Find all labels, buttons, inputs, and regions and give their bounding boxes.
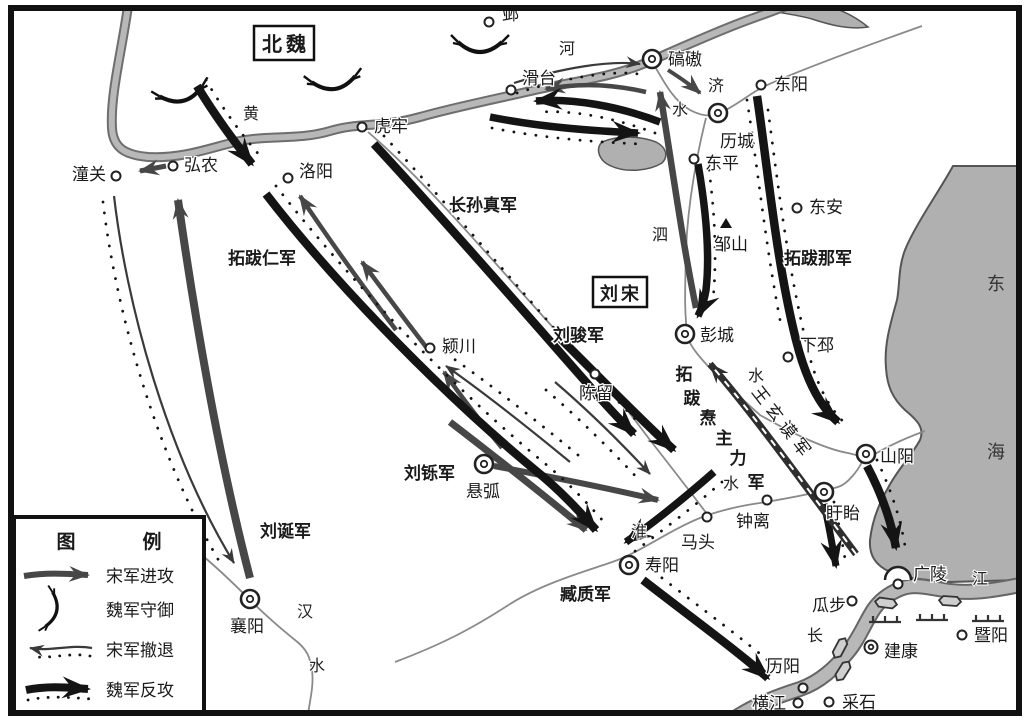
riverbank-fort-icon: [972, 615, 1004, 621]
yellow-river: [112, 3, 795, 157]
city-label-dongping: 东平: [705, 154, 739, 173]
city-label-xiapi: 下邳: [800, 336, 834, 355]
city-marker-shouyang: [620, 556, 638, 574]
city-label-licheng: 历城: [720, 132, 754, 151]
svg-text:跋: 跋: [684, 388, 701, 408]
river-label-huai: 淮: [631, 523, 647, 541]
battle-map: 北魏 刘宋 东 海 黄 河 济 水 泗 水 淮 水 汉 水 长 江 潼关 弘农 …: [0, 0, 1030, 720]
city-marker-qiaoao: [643, 50, 661, 68]
army-label-tuoba-na: 拓跋那军: [784, 248, 852, 268]
city-marker-dongyang: [757, 81, 766, 90]
city-label-shanyang: 山阳: [880, 447, 914, 466]
city-marker-hengjiang: [794, 699, 803, 708]
city-label-guangling: 广陵: [913, 565, 947, 584]
sea-label-hai: 海: [987, 442, 1005, 462]
svg-text:主: 主: [716, 428, 733, 448]
region-north-wei: 北魏: [254, 26, 314, 60]
city-marker-guabu: [848, 597, 857, 606]
city-marker-shanyang: [857, 445, 875, 463]
city-label-yingchuan: 颍川: [442, 337, 476, 356]
wei-defense-arc-icon: [304, 68, 364, 93]
legend-label-wei-counter: 魏军反攻: [106, 681, 174, 700]
city-label-pengcheng: 彭城: [700, 326, 734, 345]
city-marker-hulao: [358, 123, 367, 132]
city-marker-dongping: [690, 155, 699, 164]
region-label-north-wei: 北魏: [262, 32, 310, 56]
legend: 图 例 宋军进攻 魏军守御 宋军撤退 魏军反攻: [14, 517, 204, 713]
river-label-he: 河: [559, 40, 575, 58]
river-label-si: 泗: [652, 226, 668, 244]
legend-title-tu: 图: [56, 531, 75, 553]
city-label-liyang: 历阳: [766, 657, 800, 676]
city-marker-licheng: [709, 104, 727, 122]
city-marker-matou: [703, 513, 712, 522]
ship-icon: [939, 596, 962, 607]
map-canvas: 北魏 刘宋 东 海 黄 河 济 水 泗 水 淮 水 汉 水 长 江 潼关 弘农 …: [0, 0, 1030, 720]
city-marker-xiapi: [784, 353, 793, 362]
svg-text:力: 力: [730, 448, 747, 468]
city-label-zoushan: 邹山: [714, 235, 748, 254]
army-label-liu-shuo: 刘铄军: [404, 463, 455, 483]
city-label-xuyi: 盱眙: [826, 504, 860, 523]
city-marker-yingchuan: [426, 344, 435, 353]
city-marker-luoyang: [284, 174, 293, 183]
city-marker-jiankang: [865, 641, 878, 654]
svg-text:拓: 拓: [676, 365, 693, 384]
city-label-hulao: 虎牢: [374, 117, 408, 136]
mountain-icon-zoushan: [720, 218, 732, 228]
army-label-changsun-zhen: 长孙真军: [449, 195, 517, 215]
city-label-chenliu: 陈留: [579, 384, 613, 403]
river-label-ji: 济: [708, 77, 724, 95]
city-marker-caishi: [825, 698, 834, 707]
river-label-chang: 长: [807, 627, 823, 645]
city-marker-xuyi: [815, 483, 833, 501]
city-label-dongyang: 东阳: [774, 75, 808, 94]
city-label-zhongli: 钟离: [736, 512, 770, 531]
city-marker-dongan: [793, 204, 802, 213]
city-label-luoyang: 洛阳: [299, 162, 333, 181]
city-marker-huatai: [507, 86, 516, 95]
city-label-qiaoao: 碻磝: [668, 50, 702, 69]
river-label-jiang: 江: [972, 570, 988, 588]
city-marker-tongguan: [112, 172, 121, 181]
legend-title-li: 例: [142, 530, 161, 553]
svg-text:军: 军: [748, 473, 765, 492]
city-marker-ye: [485, 18, 494, 27]
region-label-liu-song: 刘宋: [600, 283, 642, 304]
city-label-guabu: 瓜步: [812, 596, 846, 615]
wei-defense-arc-icon: [451, 35, 509, 52]
city-label-xuanhu: 悬弧: [466, 482, 500, 501]
city-marker-xiangyang: [241, 590, 259, 608]
city-marker-xuanhu: [475, 455, 493, 473]
city-marker-liyang: [799, 684, 808, 693]
river-label-han-shui: 水: [309, 657, 325, 675]
city-label-dongan: 东安: [809, 198, 843, 217]
sea-label-dong: 东: [987, 274, 1005, 294]
river-label-ji-shui: 水: [672, 101, 688, 119]
army-label-liu-dan: 刘诞军: [260, 521, 311, 541]
city-marker-hongnong: [169, 162, 178, 171]
city-label-hongnong: 弘农: [184, 156, 218, 175]
lake-patch: [599, 137, 666, 170]
city-label-jiyang: 暨阳: [974, 626, 1008, 645]
svg-text:焘: 焘: [700, 408, 717, 428]
legend-song-attack-icon: [24, 574, 88, 576]
army-label-tuoba-ren: 拓跋仁军: [228, 248, 296, 268]
city-marker-pengcheng: [676, 325, 694, 343]
city-marker-jiyang: [958, 631, 967, 640]
legend-label-song-attack: 宋军进攻: [106, 567, 174, 586]
city-label-xiangyang: 襄阳: [230, 616, 264, 636]
city-label-shouyang: 寿阳: [645, 556, 679, 575]
army-label-liu-jun: 刘骏军: [553, 325, 604, 345]
city-marker-chenliu: [591, 370, 600, 379]
city-marker-zhongli: [763, 496, 772, 505]
army-label-zang-zhi: 臧质军: [560, 584, 611, 604]
legend-label-wei-defense: 魏军守御: [106, 601, 174, 620]
city-label-tongguan: 潼关: [72, 165, 106, 184]
region-liu-song: 刘宋: [593, 277, 647, 307]
river-label-han: 汉: [297, 603, 313, 621]
river-label-huai-shui: 水: [723, 475, 739, 493]
city-label-caishi: 采石: [842, 693, 876, 712]
riverbank-fort-icon: [916, 614, 948, 620]
ship-icon: [874, 597, 897, 609]
river-label-si-shui: 水: [748, 367, 764, 385]
river-label-huang: 黄: [243, 105, 259, 123]
city-label-matou: 马头: [681, 533, 715, 552]
city-label-huatai: 滑台: [522, 69, 556, 88]
legend-label-song-retreat: 宋军撤退: [106, 641, 174, 660]
city-label-jiankang: 建康: [884, 642, 918, 661]
riverbank-fort-icon: [869, 616, 901, 622]
